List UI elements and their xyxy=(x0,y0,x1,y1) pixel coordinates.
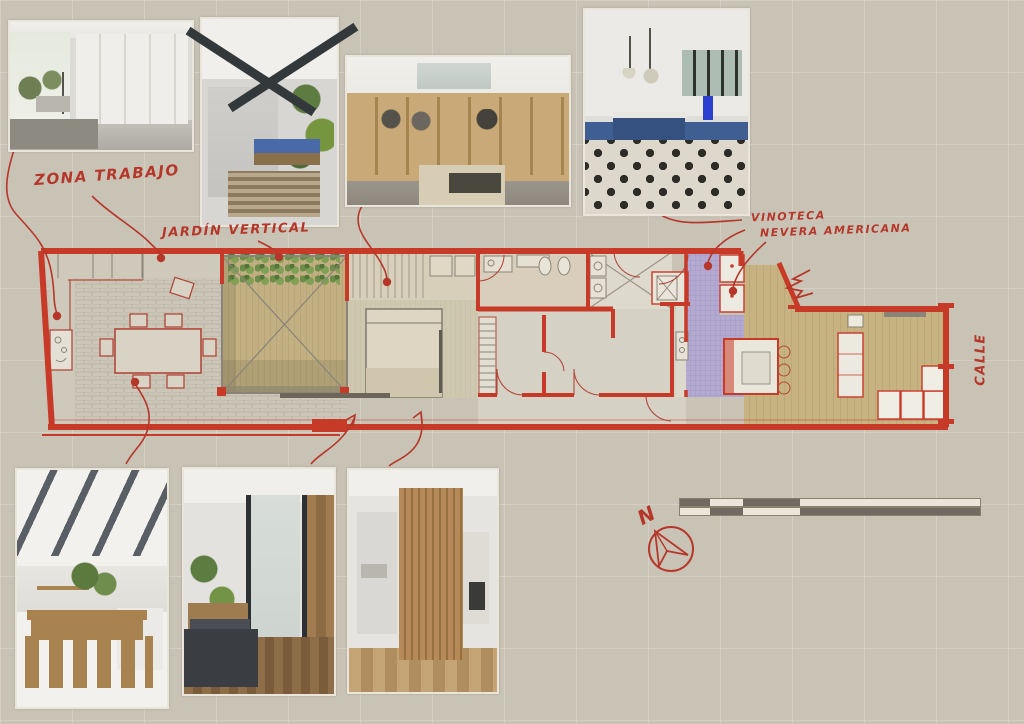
scale-segment xyxy=(680,507,710,515)
scale-bar-bottom-row xyxy=(680,507,980,515)
annotation-vinoteca: VINOTECA xyxy=(751,210,826,225)
stairs xyxy=(479,317,496,395)
scale-segment xyxy=(743,507,800,515)
photo-blue-kitchen xyxy=(583,8,750,216)
photo-dining-room xyxy=(15,468,169,709)
scale-segment xyxy=(800,499,980,507)
scale-bar-top-row xyxy=(680,499,980,507)
scale-segment xyxy=(743,499,800,507)
moodboard-canvas: ZONA TRABAJO JARDÍN VERTICAL VINOTECA NE… xyxy=(0,0,1024,724)
photo-courtyard-garden xyxy=(200,17,339,227)
scale-segment xyxy=(800,507,980,515)
north-compass-icon xyxy=(649,527,693,571)
scale-bar xyxy=(680,499,980,515)
scale-segment xyxy=(680,499,710,507)
photo-wood-slat-corridor xyxy=(347,468,499,694)
dining-table xyxy=(115,329,201,373)
photo-walk-in-closet xyxy=(345,55,571,207)
scale-segment xyxy=(710,507,743,515)
photo-wardrobe-room xyxy=(8,20,194,152)
tv-bench xyxy=(884,312,926,317)
photo-hallway-courtyard xyxy=(182,467,336,696)
scale-segment xyxy=(710,499,743,507)
annotation-calle: CALLE xyxy=(975,321,990,397)
